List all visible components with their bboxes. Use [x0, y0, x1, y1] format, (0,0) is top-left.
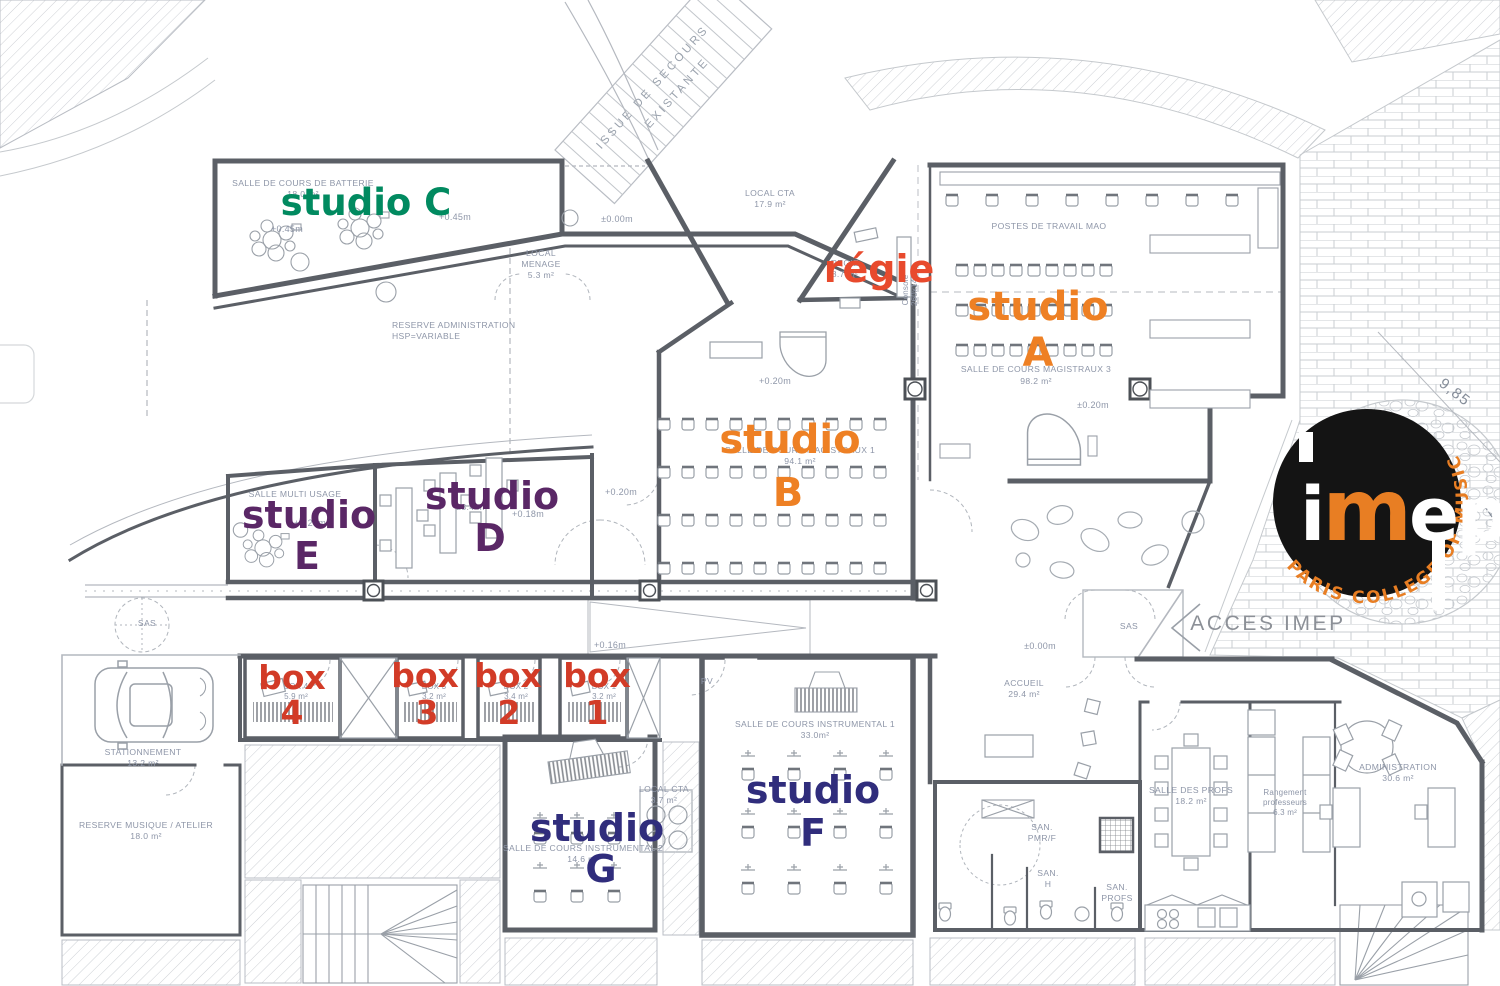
label-studio-b-letter: B — [773, 470, 804, 516]
elevation-mark: ±0.00m — [601, 214, 633, 224]
label-studio-b-word: studio — [719, 417, 860, 463]
room-label-san-h-1: SAN. — [1037, 868, 1058, 878]
floor-plan-page: ISSUE DE SECOURS EXISTANTE — [0, 0, 1500, 986]
elevation-mark: ±0.00m — [1024, 641, 1056, 651]
room-label-reserve-admin-2: HSP=VARIABLE — [392, 331, 460, 341]
elevation-mark: +0.20m — [605, 487, 637, 497]
room-label-cta1-2: 17.9 m² — [754, 199, 786, 209]
room-label-reserve-musique-1: RESERVE MUSIQUE / ATELIER — [79, 820, 213, 830]
room-label-instr1-2: 33.0m² — [801, 730, 830, 740]
elevation-mark: +0.45m — [271, 224, 303, 234]
room-label-san-pmrf-1: SAN. — [1031, 822, 1052, 832]
label-studio-d-letter: D — [474, 516, 506, 560]
room-label-san-profs-2: PROFS — [1101, 893, 1132, 903]
room-label-rangement-2: professeurs — [1263, 798, 1307, 807]
svg-text:box: box — [391, 656, 459, 695]
imep-i-bar — [1299, 432, 1313, 462]
imep-wordmark: imep — [1300, 461, 1500, 561]
svg-text:2: 2 — [498, 693, 521, 732]
svg-text:box: box — [258, 658, 326, 697]
room-label-accueil-2: 29.4 m² — [1008, 689, 1040, 699]
room-label-sas-left: SAS — [138, 618, 156, 628]
room-label-menage-1: LOCAL — [526, 248, 556, 258]
room-label-menage-2: MENAGE — [521, 259, 560, 269]
elevation-marks: +0.45m +0.45m ±0.00m +0.20m ±0.20m +0.20… — [271, 212, 1109, 651]
room-label-rangement-3: 6.3 m² — [1273, 808, 1297, 817]
label-studio-f-letter: F — [800, 811, 826, 855]
room-label-stationnement-2: 13.2 m² — [127, 758, 159, 768]
room-label-san-pmrf-2: PMR/F — [1028, 833, 1056, 843]
room-label-san-profs-1: SAN. — [1106, 882, 1127, 892]
label-studio-e-letter: E — [294, 534, 320, 578]
elevation-mark: +0.20m — [759, 376, 791, 386]
room-label-admin-1: ADMINISTRATION — [1359, 762, 1437, 772]
room-label-magistraux3-2: 98.2 m² — [1020, 376, 1052, 386]
stair-left — [303, 885, 457, 983]
room-label-san-h-2: H — [1045, 879, 1052, 889]
svg-text:box: box — [474, 656, 542, 695]
room-label-admin-2: 30.6 m² — [1382, 773, 1414, 783]
floor-plan-svg: ISSUE DE SECOURS EXISTANTE — [0, 0, 1500, 986]
exterior-stair: ISSUE DE SECOURS EXISTANTE — [555, 0, 772, 204]
car — [95, 661, 213, 749]
svg-text:box: box — [563, 656, 631, 695]
studio-a-mao-chairs — [946, 195, 1274, 206]
room-label-cta2-1: LOCAL CTA — [639, 784, 689, 794]
room-label-pv: PV — [701, 676, 713, 686]
san-block-furniture — [939, 800, 1133, 925]
room-label-accueil-1: ACCUEIL — [1004, 678, 1044, 688]
label-studio-a-letter: A — [1023, 330, 1054, 376]
label-studio-a-word: studio — [967, 284, 1108, 330]
elevation-mark: +0.16m — [594, 640, 626, 650]
acces-imep-label: ACCES IMEP — [1190, 612, 1346, 635]
room-label-profs-2: 18.2 m² — [1175, 796, 1207, 806]
room-label-mao: POSTES DE TRAVAIL MAO — [992, 221, 1107, 231]
label-studio-d-word: studio — [425, 474, 559, 518]
elevation-mark: ±0.20m — [1077, 400, 1109, 410]
room-label-profs-1: SALLE DES PROFS — [1149, 785, 1233, 795]
label-regie: régie — [824, 247, 935, 291]
svg-text:1: 1 — [586, 693, 609, 732]
room-label-instr1-1: SALLE DE COURS INSTRUMENTAL 1 — [735, 719, 895, 729]
label-studio-f-word: studio — [746, 768, 880, 812]
accueil-furniture — [985, 699, 1100, 779]
room-label-cta2-2: 3.7 m² — [651, 795, 677, 805]
room-label-reserve-admin-1: RESERVE ADMINISTRATION — [392, 320, 515, 330]
label-studio-c: studio C — [281, 181, 452, 224]
label-studio-g-word: studio — [530, 806, 664, 850]
room-label-stationnement-1: STATIONNEMENT — [105, 747, 182, 757]
svg-text:4: 4 — [281, 693, 304, 732]
room-label-rangement-1: Rangement — [1263, 788, 1307, 797]
administration-furniture — [1320, 720, 1469, 917]
label-studio-e-word: studio — [242, 493, 376, 537]
hatch-zones — [62, 742, 1335, 985]
room-label-reserve-musique-2: 18.0 m² — [130, 831, 162, 841]
imep-p-stem — [1432, 535, 1445, 611]
room-label-menage-3: 5.3 m² — [528, 270, 554, 280]
room-label-sas-right: SAS — [1120, 621, 1138, 631]
label-studio-g-letter: G — [585, 847, 616, 891]
room-label-cta1-1: LOCAL CTA — [745, 188, 795, 198]
rangement-furniture — [1248, 710, 1330, 852]
salle-profs-furniture — [1145, 734, 1250, 931]
svg-text:3: 3 — [416, 693, 439, 732]
